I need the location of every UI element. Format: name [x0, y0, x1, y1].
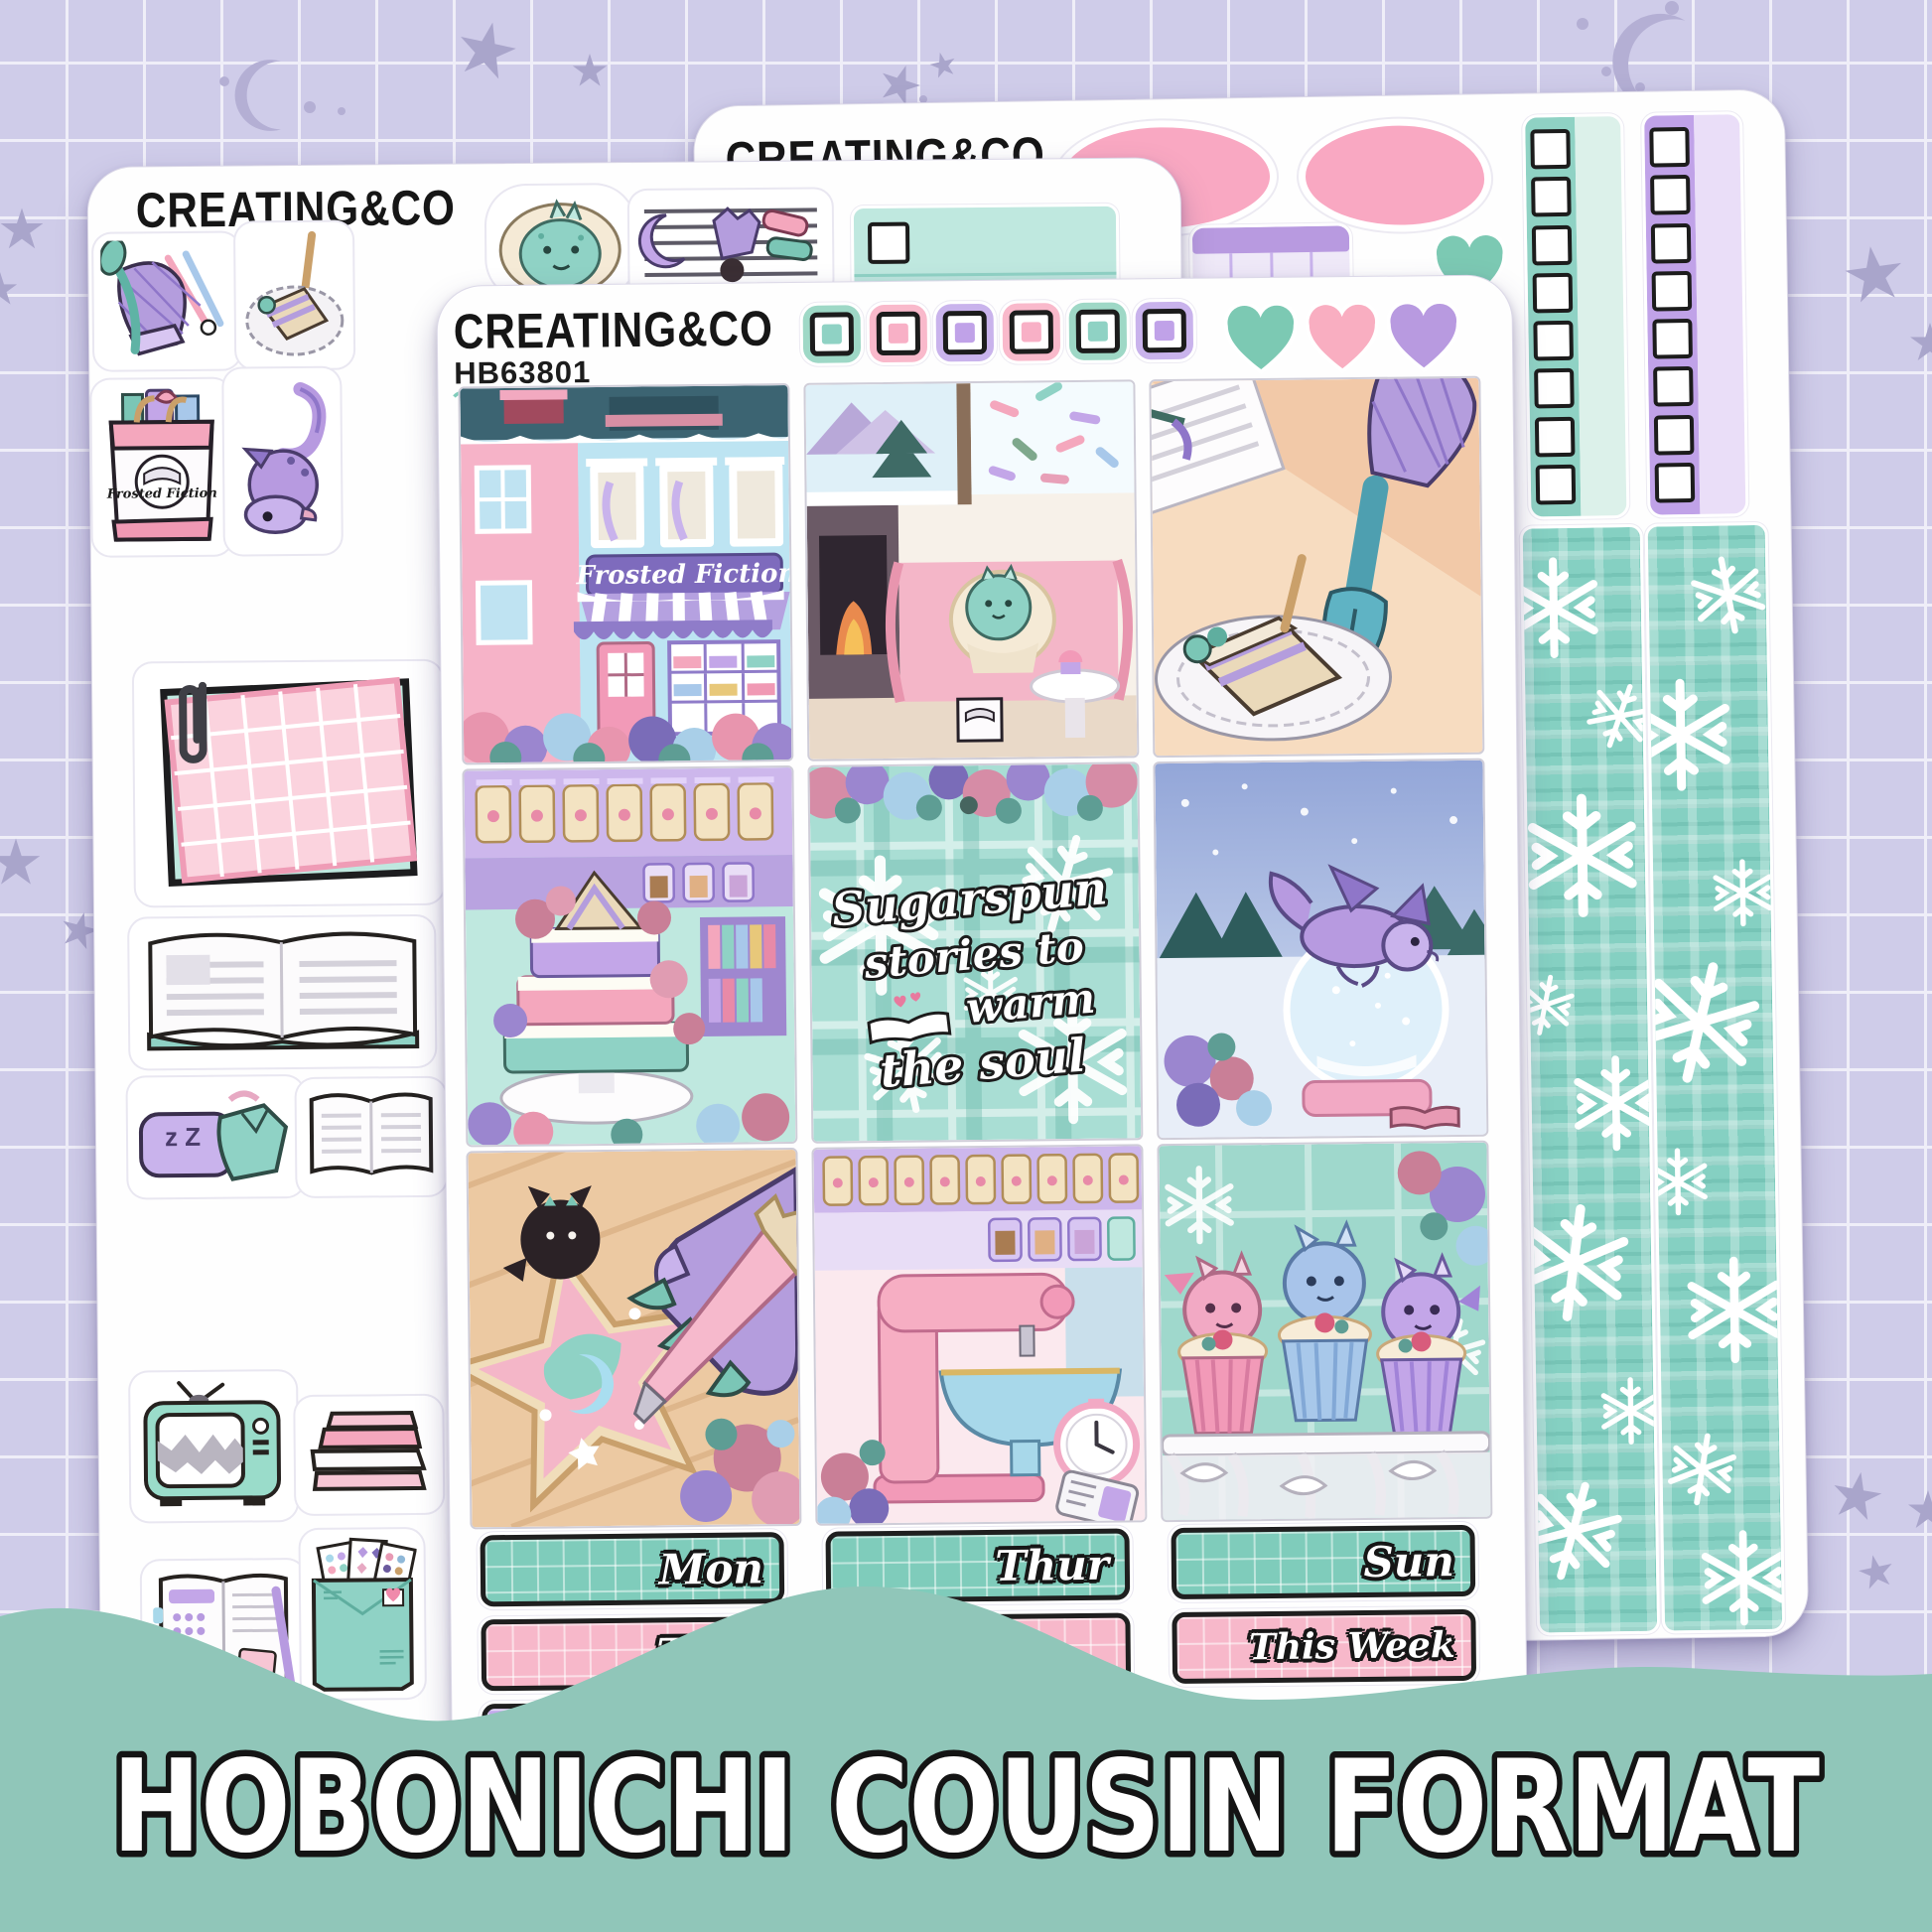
- fullbox-cake-of-books: [462, 765, 797, 1147]
- product-image: CREATING&CO: [0, 0, 1932, 1932]
- bag-label: Frosted Fiction: [106, 486, 217, 502]
- fullbox-dragon-fireplace: [803, 379, 1139, 760]
- book-bag-sticker: Frosted Fiction: [91, 379, 232, 556]
- pillow-zzz: z Z: [165, 1122, 201, 1152]
- checkbox-sticker: [1069, 302, 1128, 360]
- heart-sticker-teal: [1224, 304, 1299, 378]
- open-book-small-sticker: [296, 1078, 446, 1196]
- brand-logo: CREATING&CO: [454, 299, 774, 360]
- teal-checkbox-column: [1525, 116, 1626, 516]
- heart-sticker-purple: [1387, 302, 1461, 376]
- fullbox-quote: Sugarspun stories to warm the soul: [807, 761, 1143, 1143]
- paperclip-note-sticker: [134, 661, 444, 906]
- purple-dragon-sticker: [223, 368, 342, 555]
- quote-line-3: warm: [964, 974, 1096, 1033]
- dragon-in-blanket-sticker: [486, 185, 635, 299]
- checkbox-sticker: [1136, 302, 1194, 360]
- checkbox-sticker: [936, 304, 995, 362]
- open-book-sticker: [129, 916, 435, 1069]
- fullbox-dragon-snowglobe: [1153, 759, 1488, 1140]
- banner-wave: HOBONICHI COUSIN FORMAT: [0, 1376, 1932, 1932]
- heart-sticker-pink: [1306, 303, 1380, 377]
- fullbox-storefront: Frosted Fiction: [458, 383, 793, 764]
- moon-icon: [235, 60, 281, 131]
- pink-washi-swatch: [1305, 124, 1485, 226]
- oven-mitts-sticker: [93, 233, 240, 370]
- cake-plate-sticker: [235, 222, 353, 369]
- fullbox-cake-slice: [1149, 376, 1484, 758]
- pillow-pajamas-sticker: z Z: [127, 1076, 304, 1198]
- checkbox-sticker: [870, 305, 928, 363]
- purple-checkbox-column: [1644, 114, 1745, 514]
- checkbox-sticker: [1003, 303, 1061, 361]
- checkbox-sticker: [803, 305, 862, 363]
- storefront-sign: Frosted Fiction: [575, 559, 791, 591]
- banner-title: HOBONICHI COUSIN FORMAT: [112, 1733, 1820, 1881]
